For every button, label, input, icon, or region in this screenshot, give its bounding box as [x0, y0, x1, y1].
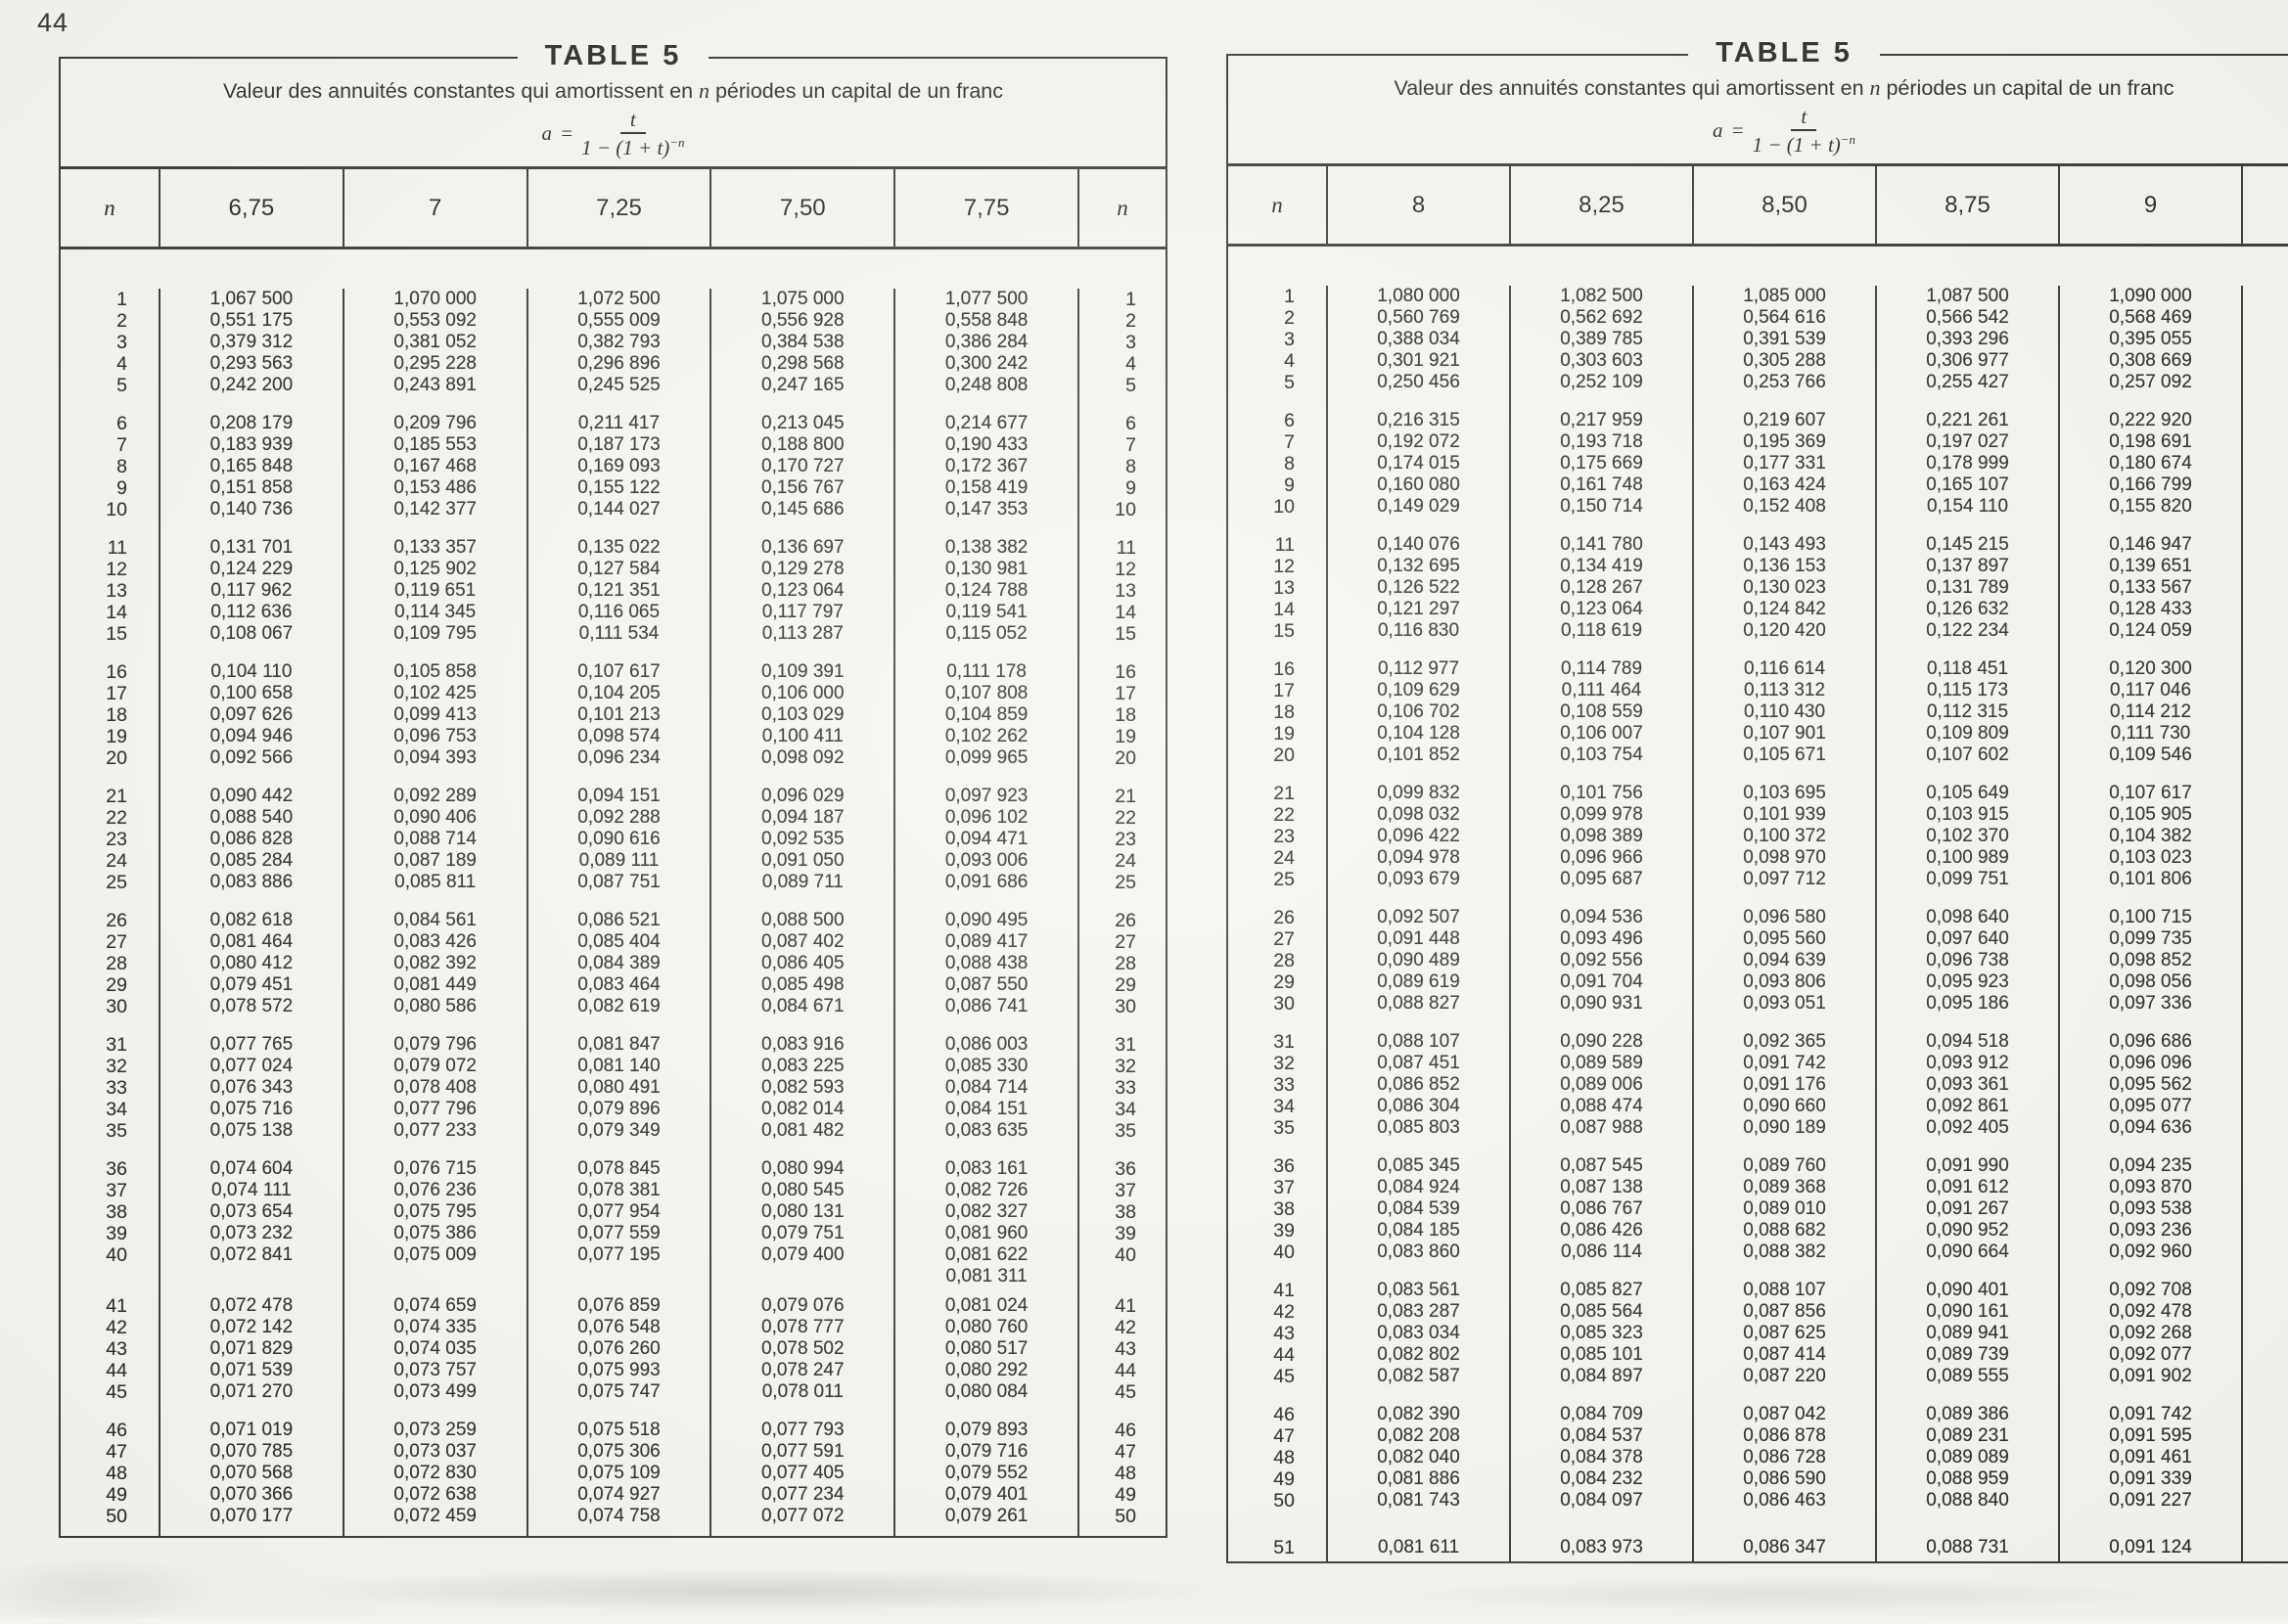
row-index-cell: 23 — [61, 829, 159, 850]
value-cell: 0,128 267 — [1509, 577, 1692, 599]
value-cell: 0,106 007 — [1509, 723, 1692, 744]
value-cell: 0,172 367 — [893, 456, 1077, 477]
table-row: 400,072 8410,075 0090,077 1950,079 4000,… — [61, 1244, 1166, 1266]
row-index-cell: 8 — [61, 456, 159, 477]
value-cell: 0,088 827 — [1326, 993, 1509, 1015]
row-index-cell: 44 — [1077, 1360, 1166, 1381]
row-index-cell — [2241, 1323, 2288, 1344]
value-cell: 0,077 591 — [709, 1441, 893, 1463]
value-cell: 0,193 718 — [1509, 431, 1692, 453]
value-cell: 0,130 023 — [1692, 577, 1875, 599]
value-cell — [343, 520, 526, 537]
row-index-cell: 38 — [1077, 1201, 1166, 1223]
row-index-cell: 16 — [1228, 658, 1326, 680]
value-cell: 0,083 464 — [526, 974, 710, 996]
table-row: 370,084 9240,087 1380,089 3680,091 6120,… — [1228, 1177, 2288, 1198]
value-cell: 0,070 366 — [159, 1484, 343, 1506]
value-cell: 0,073 757 — [343, 1360, 526, 1381]
value-cell — [893, 1017, 1077, 1034]
value-cell: 0,083 225 — [709, 1056, 893, 1077]
value-cell: 0,092 077 — [2058, 1344, 2241, 1366]
row-index-cell: 21 — [1077, 786, 1166, 807]
value-cell: 0,295 228 — [343, 353, 526, 375]
table-title-block: Valeur des annuités constantes qui amort… — [1228, 56, 2288, 163]
row-index-cell: 35 — [1228, 1117, 1326, 1139]
row-index-cell: 30 — [1077, 996, 1166, 1017]
row-index-cell: 30 — [1228, 993, 1326, 1015]
row-index-cell: 36 — [1077, 1158, 1166, 1180]
row-index-cell: 11 — [1077, 537, 1166, 559]
value-cell: 0,217 959 — [1509, 410, 1692, 431]
row-index-cell: 41 — [1077, 1295, 1166, 1317]
value-cell: 0,293 563 — [159, 353, 343, 375]
row-index-cell — [2241, 907, 2288, 928]
value-cell: 0,097 923 — [893, 786, 1077, 807]
value-cell: 0,086 878 — [1692, 1425, 1875, 1447]
value-cell: 0,084 671 — [709, 996, 893, 1017]
value-cell: 0,084 709 — [1509, 1404, 1692, 1425]
row-index-cell: 18 — [61, 704, 159, 726]
value-cell: 0,094 639 — [1692, 950, 1875, 971]
value-cell: 0,564 616 — [1692, 307, 1875, 329]
value-cell: 0,080 412 — [159, 953, 343, 974]
value-cell — [526, 520, 710, 537]
value-cell: 0,107 602 — [1875, 744, 2058, 766]
row-index-cell — [1228, 393, 1326, 410]
value-cell: 0,131 701 — [159, 537, 343, 559]
value-cell: 0,118 451 — [1875, 658, 2058, 680]
value-cell: 0,086 852 — [1326, 1074, 1509, 1096]
value-cell: 0,078 381 — [526, 1180, 710, 1201]
value-cell: 0,077 195 — [526, 1244, 710, 1266]
value-cell: 0,088 714 — [343, 829, 526, 850]
value-cell: 0,081 140 — [526, 1056, 710, 1077]
value-cell — [526, 1266, 710, 1287]
value-cell — [1875, 518, 2058, 534]
table-row: 30,388 0340,389 7850,391 5390,393 2960,3… — [1228, 329, 2288, 350]
row-index-cell: 49 — [61, 1484, 159, 1506]
value-cell: 0,393 296 — [1875, 329, 2058, 350]
value-cell — [1509, 642, 1692, 658]
value-cell — [526, 645, 710, 661]
value-cell: 0,078 011 — [709, 1381, 893, 1403]
value-cell: 0,093 870 — [2058, 1177, 2241, 1198]
table-row: 40,293 5630,295 2280,296 8960,298 5680,3… — [61, 353, 1166, 375]
scan-smudge — [1390, 1577, 2173, 1612]
row-index-cell: 27 — [1077, 931, 1166, 953]
value-cell: 0,560 769 — [1326, 307, 1509, 329]
value-cell: 0,104 205 — [526, 683, 710, 704]
table-row: 120,124 2290,125 9020,127 5840,129 2780,… — [61, 559, 1166, 580]
row-index-cell: 6 — [1077, 413, 1166, 434]
value-cell: 0,088 500 — [709, 910, 893, 931]
value-cell: 0,216 315 — [1326, 410, 1509, 431]
value-cell: 0,074 035 — [343, 1338, 526, 1360]
row-index-cell: 10 — [61, 499, 159, 520]
value-cell: 0,134 419 — [1509, 556, 1692, 577]
value-cell: 0,096 096 — [2058, 1053, 2241, 1074]
table-body: 11,080 0001,082 5001,085 0001,087 5001,0… — [1228, 247, 2288, 1561]
value-cell: 0,086 405 — [709, 953, 893, 974]
row-index-cell: 2 — [61, 310, 159, 332]
row-group-gap — [1228, 1015, 2288, 1031]
row-index-cell: 46 — [1077, 1420, 1166, 1441]
row-index-cell: 32 — [1077, 1056, 1166, 1077]
row-index-cell: 10 — [1228, 496, 1326, 518]
row-index-cell — [1228, 890, 1326, 907]
value-cell: 0,076 548 — [526, 1317, 710, 1338]
value-cell: 0,101 852 — [1326, 744, 1509, 766]
row-index-cell: 47 — [1077, 1441, 1166, 1463]
row-index-cell: 14 — [61, 602, 159, 623]
value-cell: 0,139 651 — [2058, 556, 2241, 577]
value-cell: 0,085 803 — [1326, 1117, 1509, 1139]
row-index-cell: 2 — [1228, 307, 1326, 329]
value-cell: 0,127 584 — [526, 559, 710, 580]
table-row: 420,072 1420,074 3350,076 5480,078 7770,… — [61, 1317, 1166, 1338]
row-index-cell: 19 — [1228, 723, 1326, 744]
row-index-cell — [2241, 950, 2288, 971]
value-cell: 0,105 671 — [1692, 744, 1875, 766]
value-cell: 0,084 924 — [1326, 1177, 1509, 1198]
value-cell: 0,090 952 — [1875, 1220, 2058, 1241]
row-index-cell: 1 — [1077, 289, 1166, 310]
value-cell: 0,188 800 — [709, 434, 893, 456]
row-index-cell — [2241, 928, 2288, 950]
value-cell — [343, 1287, 526, 1295]
scanned-page: { "page": { "number": "44" }, "table_lef… — [0, 0, 2288, 1617]
value-cell: 0,088 382 — [1692, 1241, 1875, 1263]
value-cell: 0,073 499 — [343, 1381, 526, 1403]
table-row: 350,075 1380,077 2330,079 3490,081 4820,… — [61, 1120, 1166, 1142]
row-group-gap — [1228, 518, 2288, 534]
table-row: 440,082 8020,085 1010,087 4140,089 7390,… — [1228, 1344, 2288, 1366]
value-cell: 0,082 802 — [1326, 1344, 1509, 1366]
value-cell: 0,088 731 — [1875, 1537, 2058, 1558]
row-index-cell: 34 — [61, 1099, 159, 1120]
row-group-gap — [1228, 1139, 2288, 1155]
value-cell: 0,082 208 — [1326, 1425, 1509, 1447]
value-cell: 0,109 629 — [1326, 680, 1509, 701]
row-index-cell: 41 — [61, 1295, 159, 1317]
value-cell — [1692, 766, 1875, 783]
value-cell: 0,245 525 — [526, 375, 710, 396]
value-cell: 0,109 795 — [343, 623, 526, 645]
table-row: 480,070 5680,072 8300,075 1090,077 4050,… — [61, 1463, 1166, 1484]
value-cell — [1875, 642, 2058, 658]
value-cell: 0,077 233 — [343, 1120, 526, 1142]
row-index-cell — [2241, 1031, 2288, 1053]
value-cell — [1875, 1139, 2058, 1155]
value-cell: 0,255 427 — [1875, 372, 2058, 393]
table-row: 150,108 0670,109 7950,111 5340,113 2870,… — [61, 623, 1166, 645]
row-index-cell — [2241, 1301, 2288, 1323]
table-row: 470,070 7850,073 0370,075 3060,077 5910,… — [61, 1441, 1166, 1463]
value-cell: 0,116 065 — [526, 602, 710, 623]
value-cell: 0,129 278 — [709, 559, 893, 580]
row-index-cell: 17 — [1077, 683, 1166, 704]
value-cell: 0,092 960 — [2058, 1241, 2241, 1263]
value-cell: 0,090 401 — [1875, 1280, 2058, 1301]
value-cell: 0,086 828 — [159, 829, 343, 850]
value-cell: 0,088 682 — [1692, 1220, 1875, 1241]
value-cell: 0,083 287 — [1326, 1301, 1509, 1323]
row-index-cell — [2241, 350, 2288, 372]
row-index-cell: 18 — [1077, 704, 1166, 726]
table-row: 300,088 8270,090 9310,093 0510,095 1860,… — [1228, 993, 2288, 1015]
row-index-cell: 51 — [1228, 1537, 1326, 1558]
value-cell: 0,074 927 — [526, 1484, 710, 1506]
row-index-cell: 30 — [61, 996, 159, 1017]
row-index-cell: 39 — [1228, 1220, 1326, 1241]
value-cell: 0,095 687 — [1509, 869, 1692, 890]
value-cell: 0,091 902 — [2058, 1366, 2241, 1387]
value-cell: 0,082 587 — [1326, 1366, 1509, 1387]
row-index-cell — [2241, 556, 2288, 577]
value-cell: 0,103 023 — [2058, 847, 2241, 869]
value-cell — [1875, 766, 2058, 783]
value-cell: 0,112 977 — [1326, 658, 1509, 680]
value-cell: 0,192 072 — [1326, 431, 1509, 453]
value-cell: 0,088 840 — [1875, 1490, 2058, 1511]
row-index-cell: 1 — [61, 289, 159, 310]
value-cell: 0,077 405 — [709, 1463, 893, 1484]
value-cell: 0,395 055 — [2058, 329, 2241, 350]
row-index-cell: 8 — [1077, 456, 1166, 477]
row-index-cell — [1077, 1017, 1166, 1034]
value-cell: 0,076 343 — [159, 1077, 343, 1099]
table-row: 140,121 2970,123 0640,124 8420,126 6320,… — [1228, 599, 2288, 620]
row-index-cell — [1077, 893, 1166, 910]
value-cell: 0,124 842 — [1692, 599, 1875, 620]
table-title: Valeur des annuités constantes qui amort… — [1394, 75, 2174, 101]
value-cell: 0,088 540 — [159, 807, 343, 829]
value-cell — [1326, 642, 1509, 658]
value-cell: 0,131 789 — [1875, 577, 2058, 599]
value-cell — [1326, 1015, 1509, 1031]
row-group-gap — [1228, 642, 2288, 658]
table-row: 490,081 8860,084 2320,086 5900,088 9590,… — [1228, 1468, 2288, 1490]
value-cell: 0,087 988 — [1509, 1117, 1692, 1139]
value-cell: 0,078 247 — [709, 1360, 893, 1381]
row-index-cell — [2241, 1280, 2288, 1301]
value-cell: 0,105 858 — [343, 661, 526, 683]
table-row: 250,083 8860,085 8110,087 7510,089 7110,… — [61, 872, 1166, 893]
row-index-cell: 46 — [1228, 1404, 1326, 1425]
value-cell: 0,081 311 — [893, 1266, 1077, 1287]
value-cell: 0,090 442 — [159, 786, 343, 807]
value-cell: 0,091 227 — [2058, 1490, 2241, 1511]
value-cell — [1509, 1511, 1692, 1537]
value-cell: 0,079 896 — [526, 1099, 710, 1120]
value-cell: 0,303 603 — [1509, 350, 1692, 372]
row-index-cell: 43 — [1228, 1323, 1326, 1344]
value-cell: 0,072 841 — [159, 1244, 343, 1266]
value-cell: 0,163 424 — [1692, 474, 1875, 496]
value-cell: 0,149 029 — [1326, 496, 1509, 518]
row-index-cell: 5 — [1077, 375, 1166, 396]
value-cell: 0,252 109 — [1509, 372, 1692, 393]
value-cell: 0,253 766 — [1692, 372, 1875, 393]
value-cell: 0,077 234 — [709, 1484, 893, 1506]
row-index-cell — [2241, 804, 2288, 826]
value-cell: 0,081 482 — [709, 1120, 893, 1142]
row-index-cell: 44 — [1228, 1344, 1326, 1366]
value-cell: 0,070 568 — [159, 1463, 343, 1484]
value-cell: 0,086 767 — [1509, 1198, 1692, 1220]
column-header-row: n 8 8,25 8,50 8,75 9 — [1228, 163, 2288, 247]
value-cell: 0,113 312 — [1692, 680, 1875, 701]
row-index-cell: 43 — [61, 1338, 159, 1360]
value-cell: 0,072 459 — [343, 1506, 526, 1527]
value-cell: 0,081 622 — [893, 1244, 1077, 1266]
value-cell: 0,077 796 — [343, 1099, 526, 1120]
value-cell: 0,077 024 — [159, 1056, 343, 1077]
value-cell: 0,167 468 — [343, 456, 526, 477]
value-cell — [159, 520, 343, 537]
row-index-cell: 34 — [1077, 1099, 1166, 1120]
value-cell: 0,136 697 — [709, 537, 893, 559]
row-index-cell — [2241, 783, 2288, 804]
value-cell: 0,082 327 — [893, 1201, 1077, 1223]
value-cell: 0,082 040 — [1326, 1447, 1509, 1468]
value-cell: 0,099 751 — [1875, 869, 2058, 890]
value-cell: 0,126 632 — [1875, 599, 2058, 620]
table-row: 90,151 8580,153 4860,155 1220,156 7670,1… — [61, 477, 1166, 499]
value-cell: 0,086 463 — [1692, 1490, 1875, 1511]
value-cell — [1509, 766, 1692, 783]
value-cell — [1875, 1015, 2058, 1031]
row-index-cell: 35 — [61, 1120, 159, 1142]
value-cell — [1692, 1263, 1875, 1280]
table-bottom-filler — [1228, 1558, 2288, 1561]
value-cell: 0,209 796 — [343, 413, 526, 434]
value-cell: 0,079 893 — [893, 1420, 1077, 1441]
value-cell: 0,093 806 — [1692, 971, 1875, 993]
value-cell: 0,151 858 — [159, 477, 343, 499]
value-cell: 0,103 029 — [709, 704, 893, 726]
annuity-formula: a = t 1 − (1 + t)−n — [1713, 105, 1855, 157]
value-cell: 0,136 153 — [1692, 556, 1875, 577]
value-cell: 0,083 886 — [159, 872, 343, 893]
value-cell: 0,103 754 — [1509, 744, 1692, 766]
row-index-cell: 3 — [1077, 332, 1166, 353]
value-cell: 0,092 289 — [343, 786, 526, 807]
row-index-cell: 9 — [1228, 474, 1326, 496]
row-index-cell — [2241, 890, 2288, 907]
value-cell: 0,116 830 — [1326, 620, 1509, 642]
row-index-cell — [61, 769, 159, 786]
value-cell: 0,146 947 — [2058, 534, 2241, 556]
row-index-cell: 29 — [1228, 971, 1326, 993]
value-cell: 0,174 015 — [1326, 453, 1509, 474]
value-cell — [1692, 1139, 1875, 1155]
value-cell: 0,119 541 — [893, 602, 1077, 623]
value-cell: 0,391 539 — [1692, 329, 1875, 350]
row-index-cell — [2241, 1366, 2288, 1387]
value-cell: 0,085 101 — [1509, 1344, 1692, 1366]
value-cell: 1,087 500 — [1875, 286, 2058, 307]
value-cell: 0,144 027 — [526, 499, 710, 520]
value-cell: 0,301 921 — [1326, 350, 1509, 372]
value-cell: 0,178 999 — [1875, 453, 2058, 474]
row-index-cell — [1228, 1139, 1326, 1155]
value-cell: 0,074 335 — [343, 1317, 526, 1338]
table-row: 220,098 0320,099 9780,101 9390,103 9150,… — [1228, 804, 2288, 826]
value-cell: 0,086 304 — [1326, 1096, 1509, 1117]
value-cell — [1875, 890, 2058, 907]
value-cell: 1,080 000 — [1326, 286, 1509, 307]
value-cell: 0,568 469 — [2058, 307, 2241, 329]
row-index-cell: 32 — [61, 1056, 159, 1077]
row-index-cell — [1077, 645, 1166, 661]
row-index-cell — [2241, 1117, 2288, 1139]
value-cell: 0,074 758 — [526, 1506, 710, 1527]
table-row: 250,093 6790,095 6870,097 7120,099 7510,… — [1228, 869, 2288, 890]
value-cell — [526, 1403, 710, 1420]
table-row: 50,242 2000,243 8910,245 5250,247 1650,2… — [61, 375, 1166, 396]
value-cell: 0,094 636 — [2058, 1117, 2241, 1139]
value-cell: 0,090 189 — [1692, 1117, 1875, 1139]
value-cell: 0,085 827 — [1509, 1280, 1692, 1301]
row-index-cell — [2241, 1387, 2288, 1404]
table-row: 500,081 7430,084 0970,086 4630,088 8400,… — [1228, 1490, 2288, 1511]
value-cell: 0,093 912 — [1875, 1053, 2058, 1074]
value-cell: 0,074 659 — [343, 1295, 526, 1317]
value-cell — [1509, 890, 1692, 907]
value-cell: 0,198 691 — [2058, 431, 2241, 453]
table-row: 310,088 1070,090 2280,092 3650,094 5180,… — [1228, 1031, 2288, 1053]
table-row: 290,079 4510,081 4490,083 4640,085 4980,… — [61, 974, 1166, 996]
row-index-cell: 12 — [1077, 559, 1166, 580]
value-cell: 0,091 461 — [2058, 1447, 2241, 1468]
value-cell: 0,080 491 — [526, 1077, 710, 1099]
value-cell — [1326, 1511, 1509, 1537]
row-index-cell — [1077, 1287, 1166, 1295]
value-cell: 0,087 856 — [1692, 1301, 1875, 1323]
value-cell: 0,079 400 — [709, 1244, 893, 1266]
value-cell — [709, 520, 893, 537]
value-cell — [1509, 1139, 1692, 1155]
value-cell — [1326, 766, 1509, 783]
value-cell: 0,558 848 — [893, 310, 1077, 332]
value-cell: 0,221 261 — [1875, 410, 2058, 431]
row-index-cell: 40 — [1077, 1244, 1166, 1266]
value-cell: 0,077 765 — [159, 1034, 343, 1056]
formula-equals: = — [560, 121, 573, 146]
row-index-cell: 20 — [1228, 744, 1326, 766]
row-index-cell: 38 — [61, 1201, 159, 1223]
value-cell: 0,092 405 — [1875, 1117, 2058, 1139]
row-index-cell — [2241, 1537, 2288, 1558]
value-cell: 0,077 954 — [526, 1201, 710, 1223]
row-index-cell — [2241, 658, 2288, 680]
row-index-cell: 2 — [1077, 310, 1166, 332]
column-header-row: n 6,75 7 7,25 7,50 7,75 n — [61, 166, 1166, 249]
row-group-gap — [61, 645, 1166, 661]
value-cell: 0,089 006 — [1509, 1074, 1692, 1096]
value-cell: 0,087 550 — [893, 974, 1077, 996]
value-cell — [1509, 1387, 1692, 1404]
value-cell: 0,086 728 — [1692, 1447, 1875, 1468]
value-cell: 0,088 959 — [1875, 1468, 2058, 1490]
row-index-cell: 47 — [61, 1441, 159, 1463]
value-cell: 0,087 414 — [1692, 1344, 1875, 1366]
value-cell — [1509, 518, 1692, 534]
value-cell: 0,121 351 — [526, 580, 710, 602]
table-row: 430,083 0340,085 3230,087 6250,089 9410,… — [1228, 1323, 2288, 1344]
row-index-cell: 49 — [1228, 1468, 1326, 1490]
